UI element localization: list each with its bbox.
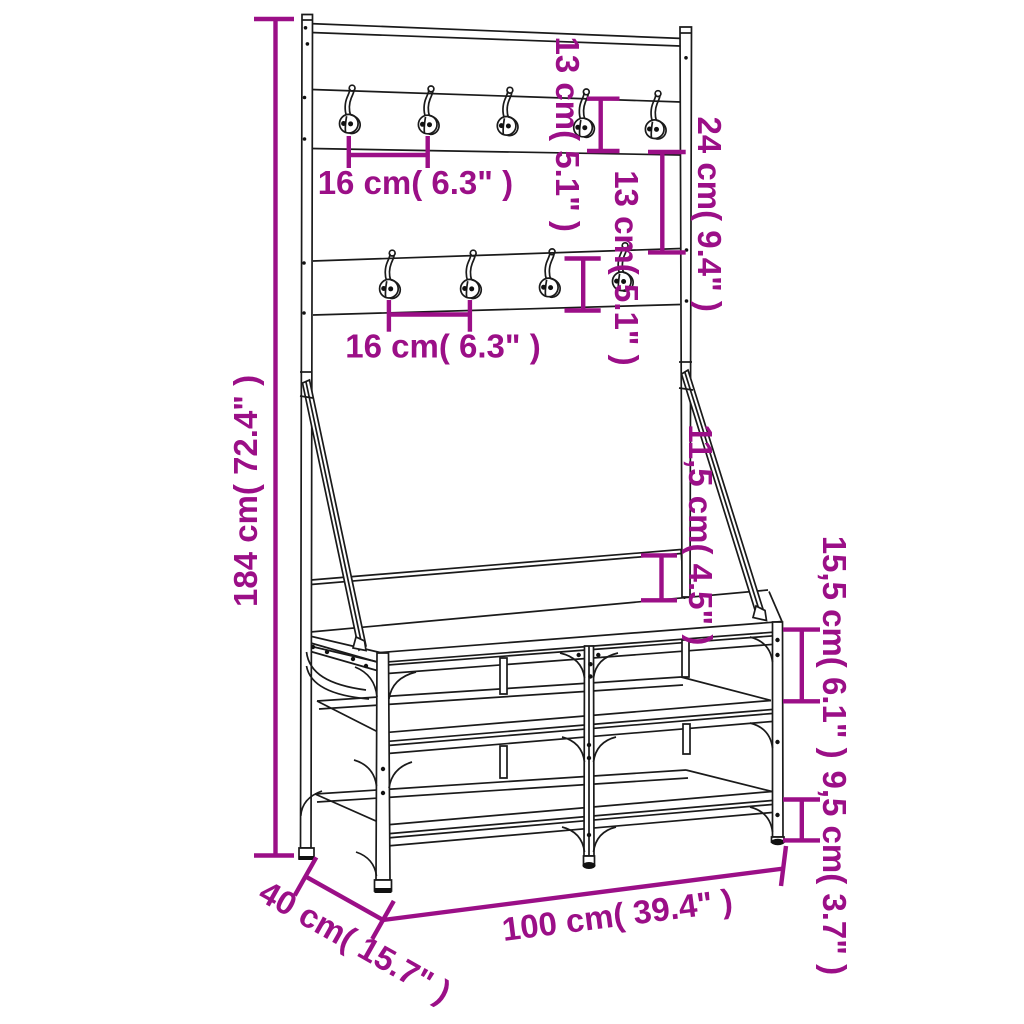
svg-text:16 cm( 6.3" ): 16 cm( 6.3" ) — [345, 328, 540, 365]
svg-text:11,5 cm( 4.5" ): 11,5 cm( 4.5" ) — [682, 424, 719, 645]
svg-text:184 cm( 72.4" ): 184 cm( 72.4" ) — [227, 375, 264, 607]
svg-text:16 cm( 6.3" ): 16 cm( 6.3" ) — [318, 164, 513, 201]
svg-text:15,5 cm( 6.1" ): 15,5 cm( 6.1" ) — [816, 536, 853, 759]
svg-text:9,5 cm( 3.7" ): 9,5 cm( 3.7" ) — [816, 771, 853, 976]
svg-text:13 cm( 5.1" ): 13 cm( 5.1" ) — [549, 37, 586, 232]
svg-text:13 cm( 5.1" ): 13 cm( 5.1" ) — [608, 170, 645, 365]
svg-text:24 cm( 9.4" ): 24 cm( 9.4" ) — [691, 117, 728, 312]
